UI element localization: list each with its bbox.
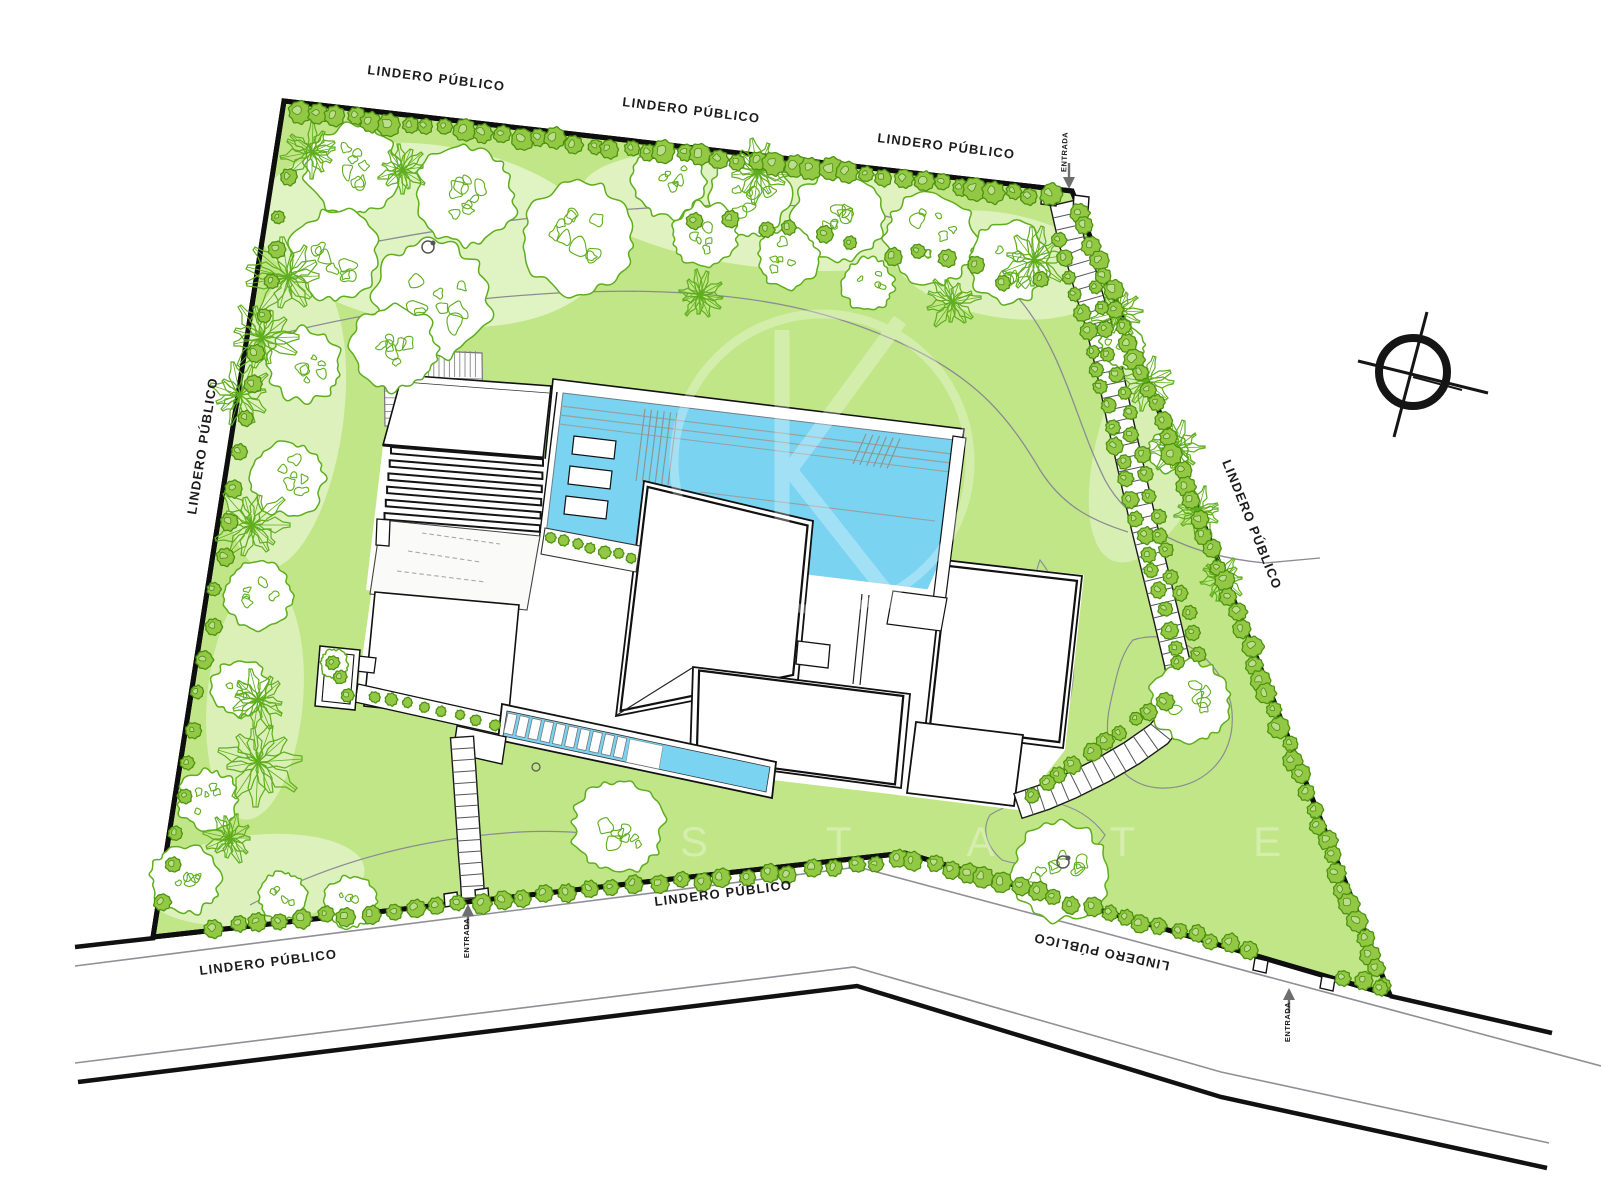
svg-text:ENTRADA: ENTRADA [1283,1002,1292,1042]
svg-text:ENTRADA: ENTRADA [1059,132,1069,173]
svg-text:ENTRADA: ENTRADA [462,918,471,958]
svg-text:STATE: STATE [680,818,1399,865]
